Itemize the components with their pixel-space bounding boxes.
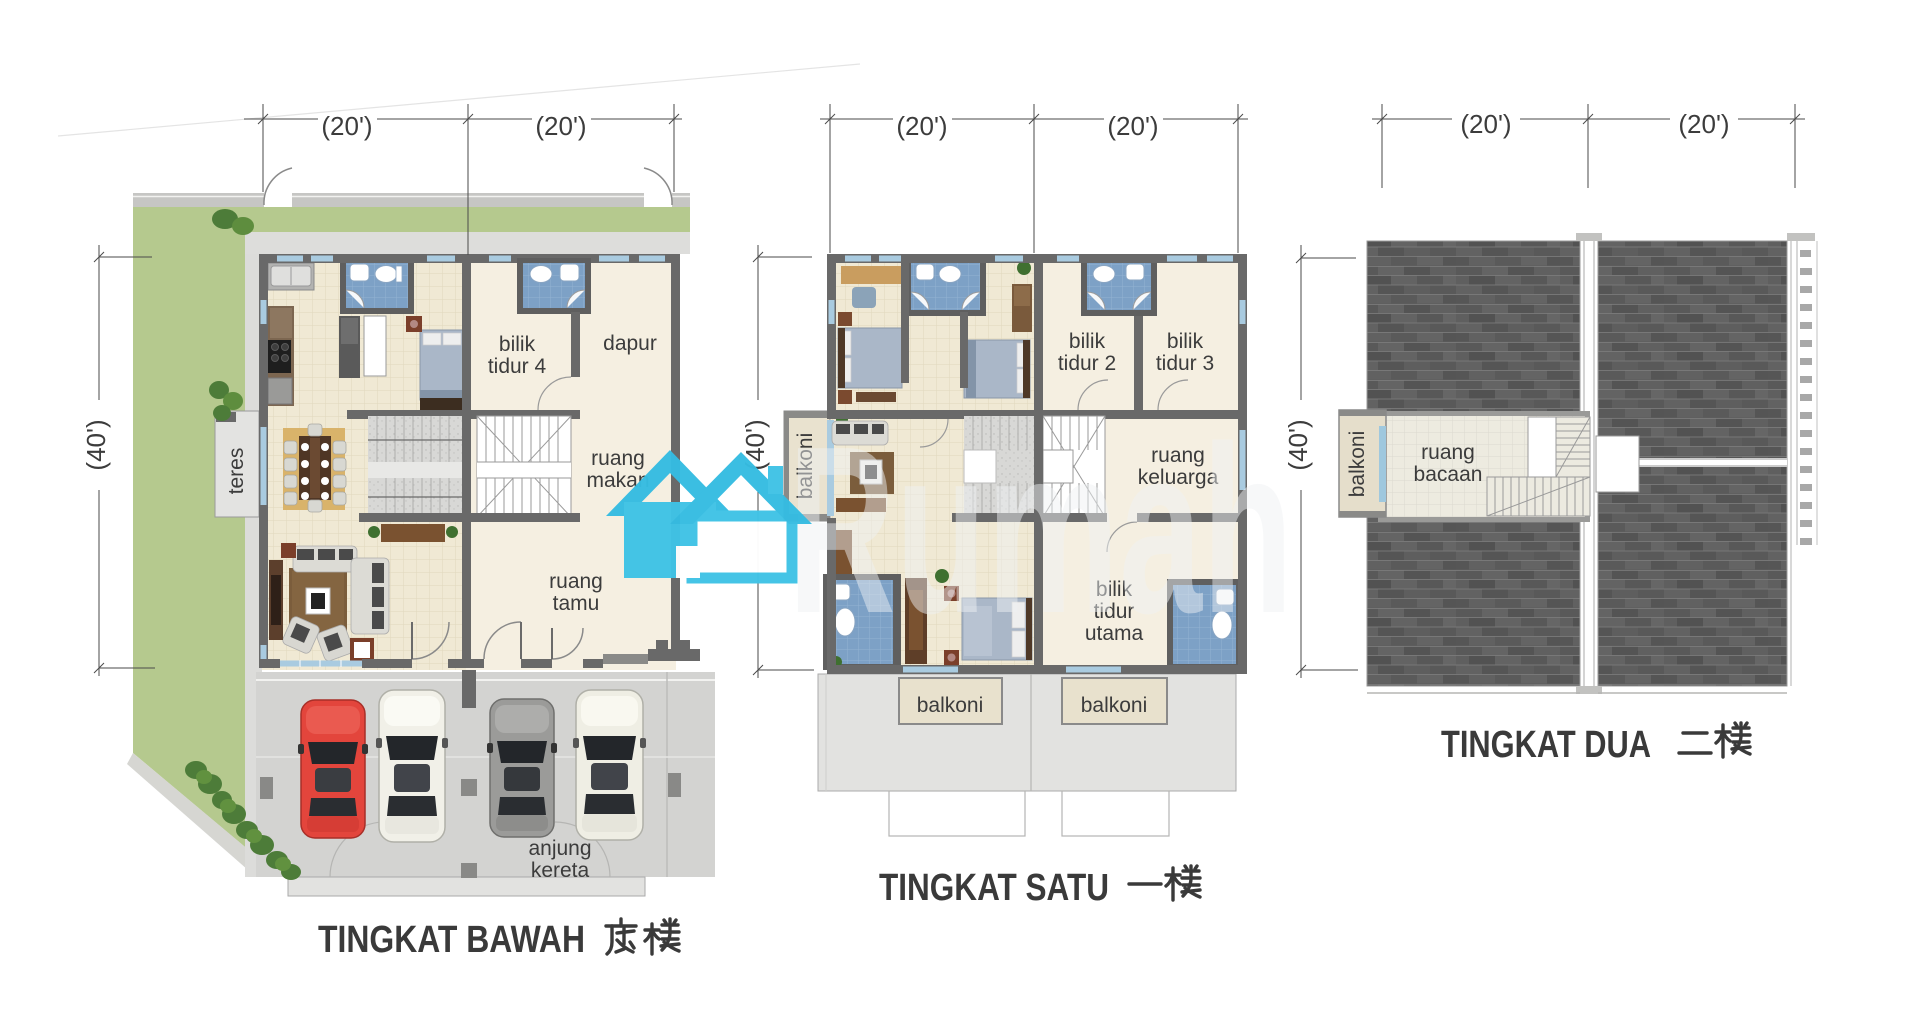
svg-text:(20'): (20') bbox=[896, 111, 947, 141]
svg-text:teres: teres bbox=[225, 448, 248, 495]
svg-text:bilik: bilik bbox=[1167, 330, 1204, 353]
svg-text:ruang: ruang bbox=[549, 570, 603, 593]
svg-text:tidur 4: tidur 4 bbox=[488, 355, 547, 378]
svg-text:balkoni: balkoni bbox=[1081, 694, 1148, 717]
svg-text:balkoni: balkoni bbox=[1346, 431, 1369, 498]
svg-text:(40'): (40') bbox=[81, 419, 111, 470]
svg-text:TINGKAT SATU: TINGKAT SATU bbox=[879, 867, 1109, 909]
svg-text:kereta: kereta bbox=[531, 859, 590, 882]
svg-text:(20'): (20') bbox=[321, 111, 372, 141]
svg-text:bacaan: bacaan bbox=[1414, 463, 1483, 486]
svg-text:bilik: bilik bbox=[1069, 330, 1106, 353]
svg-text:TINGKAT BAWAH: TINGKAT BAWAH bbox=[318, 919, 585, 961]
svg-text:(20'): (20') bbox=[1460, 109, 1511, 139]
svg-text:bilik: bilik bbox=[499, 333, 536, 356]
svg-text:tamu: tamu bbox=[553, 592, 600, 615]
svg-text:balkoni: balkoni bbox=[917, 694, 984, 717]
svg-text:dapur: dapur bbox=[603, 332, 657, 355]
svg-text:ruang: ruang bbox=[1421, 441, 1475, 464]
svg-text:ruang: ruang bbox=[591, 447, 645, 470]
svg-text:(20'): (20') bbox=[535, 111, 586, 141]
svg-text:(20'): (20') bbox=[1107, 111, 1158, 141]
svg-text:TINGKAT DUA: TINGKAT DUA bbox=[1441, 724, 1651, 766]
svg-text:tidur 3: tidur 3 bbox=[1156, 352, 1214, 375]
svg-text:anjung: anjung bbox=[528, 837, 591, 860]
svg-text:Rumah: Rumah bbox=[788, 398, 1293, 663]
svg-text:tidur 2: tidur 2 bbox=[1058, 352, 1116, 375]
svg-text:(20'): (20') bbox=[1678, 109, 1729, 139]
